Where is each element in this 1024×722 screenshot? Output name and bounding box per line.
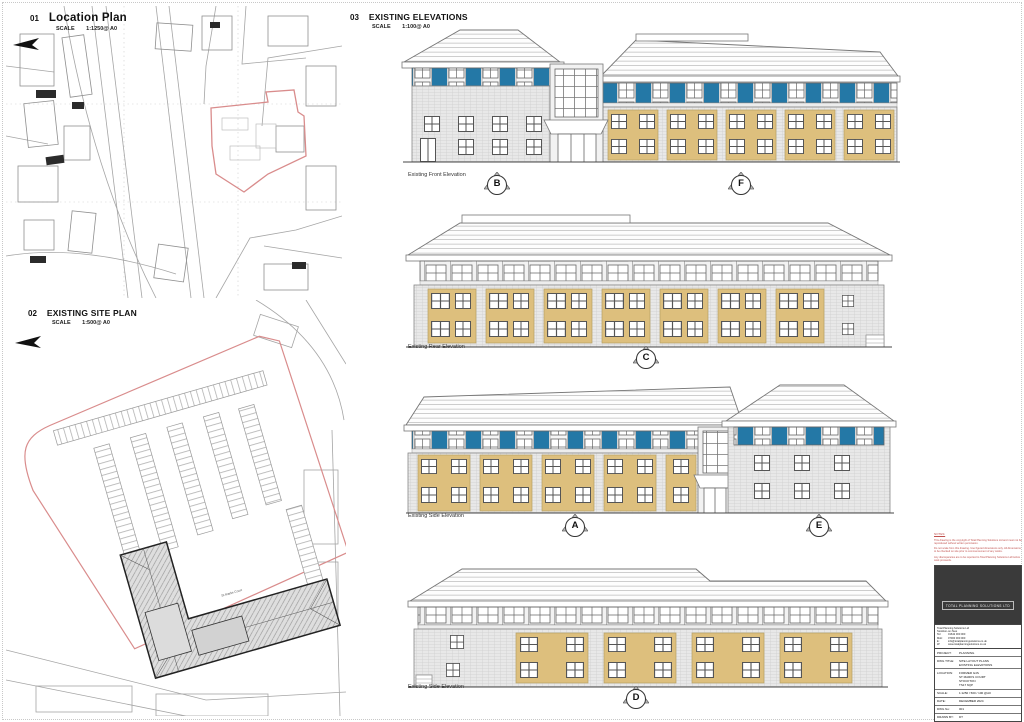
site-building-label: St Marks Court [221,588,243,598]
parking-row [239,404,282,505]
window [742,662,760,678]
window [446,663,460,677]
window [654,637,672,652]
window [663,321,682,337]
window [492,139,508,155]
parking-row [286,505,323,586]
window [607,487,623,503]
window [794,455,810,471]
site-core: St Marks Court [9,329,346,696]
window [513,293,529,309]
window [687,293,703,309]
window [654,662,672,678]
window [545,487,561,503]
side-elevation-ae-drawing [398,377,908,522]
title-block-notes: NOTES: This drawing is the copyright of … [934,533,1022,562]
window [803,321,819,337]
location-row: LOCATION: FORMER G4S ST MARKS COURT STOC… [935,669,1021,689]
window [696,662,714,678]
window [483,459,499,474]
date-row: DATE: DECEMBER 2024 [935,698,1021,706]
title-block-rows: PROJECT: PLANNING DWG TITLE: SITE LAYOUT… [935,648,1021,721]
elevation-label: Existing Side Elevation [408,684,464,690]
window [571,321,587,337]
window [566,637,584,652]
window [629,321,645,337]
site-plan-number: 02 [28,309,37,318]
window [670,139,686,154]
window [431,293,450,309]
window [611,114,627,129]
side-elevation-d-figure: Existing Side Elevation D [398,545,910,717]
window [566,662,584,678]
window [847,114,863,129]
window [698,139,714,154]
elevations-scale-value: 1:100@ A0 [402,24,430,30]
front-elevation-figure: Existing Front Elevation B F [398,20,910,200]
window [788,114,804,129]
window [513,459,529,474]
window [875,114,891,129]
elevation-label: Existing Front Elevation [408,172,466,178]
window [834,455,850,471]
elevations-scale-label: SCALE [372,24,391,30]
window [520,637,538,652]
elevation-marker-B: B [484,172,510,196]
window [639,114,655,129]
rear-elevation-figure: Existing Rear Elevation C [398,203,910,373]
window [489,293,508,309]
side-elevation-d-drawing [398,545,908,697]
elevations-header: 03 EXISTING ELEVATIONS SCALE 1:100@ A0 [350,12,468,30]
site-plan-scale-label: SCALE [52,320,71,326]
elevation-label: Existing Rear Elevation [408,344,465,350]
window [721,293,740,309]
window [729,114,745,129]
window [637,459,653,474]
window [816,114,832,129]
window [673,487,689,503]
window [742,637,760,652]
title-block-contact: Total Planning Solutions Ltd Stockton-on… [935,624,1021,648]
location-plan-number: 01 [30,14,39,23]
site-plan-map: St Marks Court [6,300,346,716]
window [803,293,819,309]
window [721,321,740,337]
site-boundary-outline [211,90,306,192]
window [513,487,529,503]
window [745,321,761,337]
site-plan-scale-value: 1:500@ A0 [82,320,110,326]
location-plan-scale-value: 1:1250@ A0 [86,26,117,32]
window [834,483,850,499]
window [608,662,626,678]
window [830,637,848,652]
window [605,293,624,309]
project-row: PROJECT: PLANNING [935,649,1021,657]
window [421,459,437,474]
window [421,487,437,503]
contact-web: www.totalplanningsolutions.co.uk [948,643,986,646]
drawing-sheet: 01 Location Plan SCALE 1:1250@ A0 [0,0,1024,722]
window [607,459,623,474]
elevation-marker-F: F [728,172,754,196]
window [450,635,464,649]
window [757,114,773,129]
location-plan-title: Location Plan [49,12,127,24]
note-line: This drawing is the copyright of Total P… [934,539,1022,545]
parking-row [53,371,267,446]
window [571,293,587,309]
site-plan-panel: 02 EXISTING SITE PLAN SCALE 1:500@ A0 [6,300,346,716]
window [757,139,773,154]
window [575,487,591,503]
elevation-marker-E: E [806,514,832,538]
scale-row: SCALE: 1:1250 / 500 / 100 @A0 [935,690,1021,698]
elevation-marker-C: C [633,346,659,370]
parking-row [94,444,142,562]
window [698,114,714,129]
elevations-title: EXISTING ELEVATIONS [369,12,468,22]
elevation-label: Existing Side Elevation [408,513,464,519]
window [729,139,745,154]
title-block: NOTES: This drawing is the copyright of … [934,533,1022,722]
company-logo: TOTAL PLANNING SOLUTIONS LTD [935,566,1021,624]
window [842,295,854,307]
window [547,293,566,309]
window [547,321,566,337]
window [754,483,770,499]
window [526,139,542,155]
window [745,293,761,309]
window [663,293,682,309]
window [847,139,863,154]
window [483,487,499,503]
window [779,293,798,309]
dwg-no-row: DWG No: 001 [935,706,1021,714]
window [788,139,804,154]
elevation-marker-D: D [623,686,649,710]
window [451,459,467,474]
window [575,459,591,474]
window [458,116,474,132]
window [545,459,561,474]
north-arrow-icon [12,36,42,52]
window [816,139,832,154]
window [784,662,802,678]
note-line: Any discrepancies are to be reported to … [934,556,1022,562]
elevation-marker-A: A [562,514,588,538]
rear-elevation-drawing [398,203,908,353]
window [455,293,471,309]
window [455,321,471,337]
window [526,116,542,132]
window [784,637,802,652]
window [451,487,467,503]
map-buildings [18,16,336,290]
map-site-internals [222,118,276,160]
window [605,321,624,337]
parking-row [167,423,213,535]
parking-row [203,412,248,518]
side-elevation-ae-figure: Existing Side Elevation A E [398,377,910,542]
note-line: Do not scale from this drawing. Use figu… [934,547,1022,553]
site-plan-title: EXISTING SITE PLAN [47,308,137,318]
window [687,321,703,337]
window [629,293,645,309]
window [611,139,627,154]
window [794,483,810,499]
window [489,321,508,337]
location-plan-scale-label: SCALE [56,26,75,32]
window [696,637,714,652]
window [779,321,798,337]
front-elevation-drawing [398,20,908,170]
window [754,455,770,471]
window [637,487,653,503]
window [492,116,508,132]
window [458,139,474,155]
window [673,459,689,474]
window [842,323,854,335]
entrance-door [421,138,436,162]
window [830,662,848,678]
window [608,637,626,652]
window [431,321,450,337]
window [670,114,686,129]
window [513,321,529,337]
location-plan-map [6,6,342,298]
dwg-title-row: DWG TITLE: SITE LAYOUT PLANSEXISTING ELE… [935,657,1021,669]
window [424,116,440,132]
location-plan-panel: 01 Location Plan SCALE 1:1250@ A0 [6,6,342,298]
window [639,139,655,154]
elevations-number: 03 [350,13,359,22]
company-name: TOTAL PLANNING SOLUTIONS LTD [942,601,1014,610]
drawn-by-row: DRAWN BY: DT [935,714,1021,721]
map-solid-buildings [30,22,306,269]
window [520,662,538,678]
parking-row [130,433,178,551]
window [875,139,891,154]
north-arrow-icon [14,334,44,350]
